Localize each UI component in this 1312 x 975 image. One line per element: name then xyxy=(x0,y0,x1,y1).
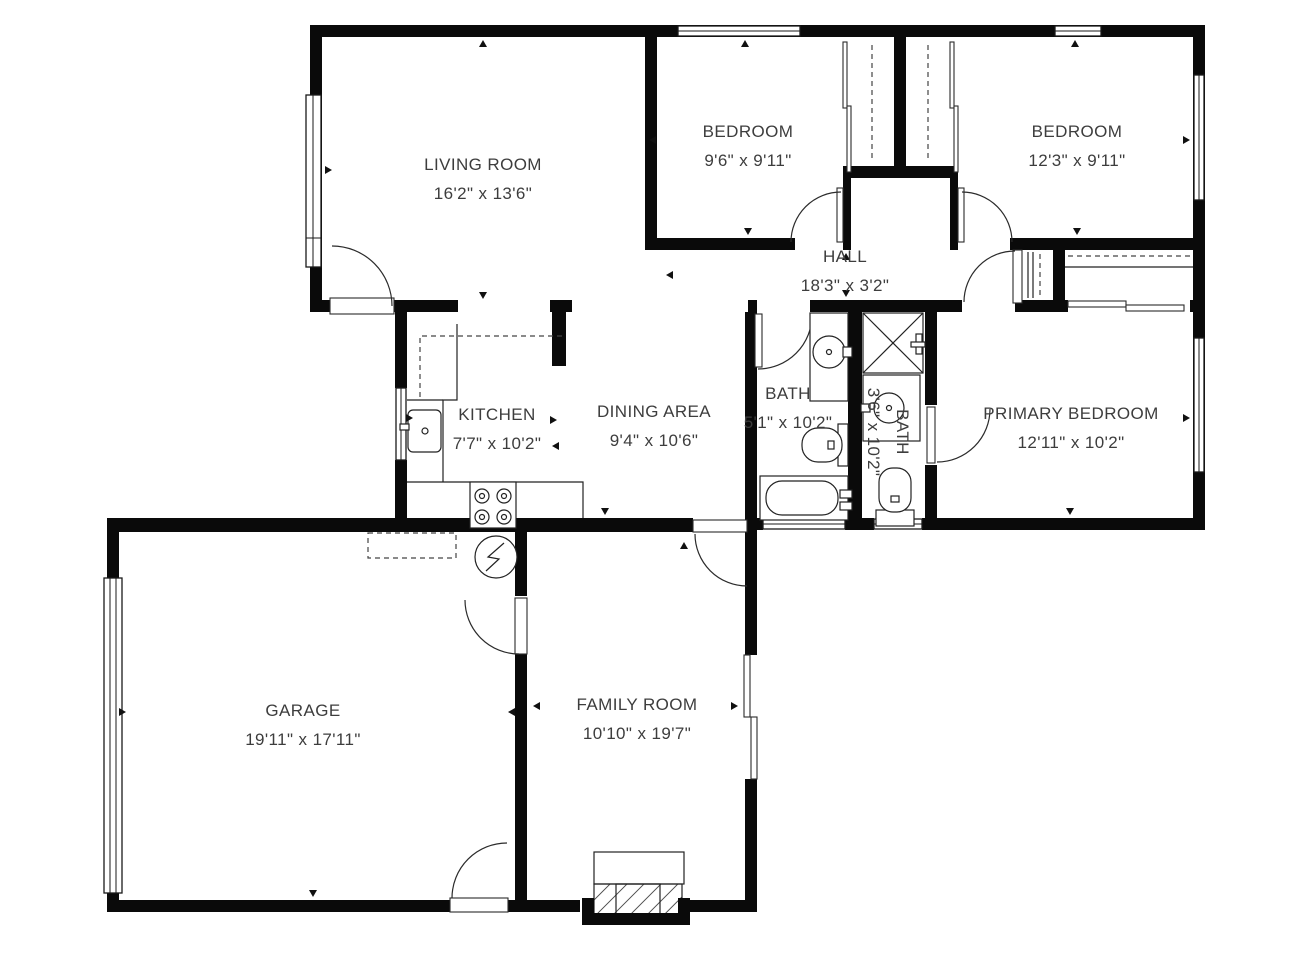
room-dims-kitchen: 7'7" x 10'2" xyxy=(453,434,542,453)
room-dims-bedroom-2: 12'3" x 9'11" xyxy=(1028,151,1125,170)
room-name-kitchen: KITCHEN xyxy=(458,405,535,424)
room-name-garage: GARAGE xyxy=(265,701,340,720)
room-dims-bedroom-1: 9'6" x 9'11" xyxy=(704,151,791,170)
fireplace-icon xyxy=(582,852,690,925)
floor-plan: LIVING ROOM16'2" x 13'6"BEDROOM9'6" x 9'… xyxy=(0,0,1312,975)
room-name-living-room: LIVING ROOM xyxy=(424,155,542,174)
room-name-bedroom-1: BEDROOM xyxy=(703,122,794,141)
room-dims-hall: 18'3" x 3'2" xyxy=(801,276,890,295)
room-name-hall: HALL xyxy=(823,247,867,266)
garage-vehicle-door xyxy=(104,578,122,893)
living-room-window xyxy=(306,95,321,267)
bedroom2-side-window xyxy=(1194,75,1204,200)
room-dims-family-room: 10'10" x 19'7" xyxy=(583,724,691,743)
room-dims-bath-2: 3'6" x 10'2" xyxy=(864,388,883,477)
toilet-icon xyxy=(876,468,914,526)
room-name-bath-1: BATH xyxy=(765,384,811,403)
room-dims-bath-1: 5'1" x 10'2" xyxy=(744,413,833,432)
floor-plan-canvas: LIVING ROOM16'2" x 13'6"BEDROOM9'6" x 9'… xyxy=(0,0,1312,975)
room-name-primary-bedroom: PRIMARY BEDROOM xyxy=(983,404,1158,423)
room-dims-living-room: 16'2" x 13'6" xyxy=(434,184,532,203)
shower-icon xyxy=(863,313,925,373)
cooktop-icon xyxy=(470,482,516,528)
primary-bedroom-window xyxy=(1194,338,1204,472)
room-dims-dining-area: 9'4" x 10'6" xyxy=(610,431,699,450)
room-dims-garage: 19'11" x 17'11" xyxy=(245,730,361,749)
family-room-slider xyxy=(744,655,757,779)
vanity-sink-icon xyxy=(810,313,852,401)
bedroom2-top-window xyxy=(1055,26,1101,36)
room-name-bedroom-2: BEDROOM xyxy=(1032,122,1123,141)
water-heater-icon xyxy=(475,536,517,578)
room-dims-primary-bedroom: 12'11" x 10'2" xyxy=(1017,433,1124,452)
room-name-family-room: FAMILY ROOM xyxy=(577,695,698,714)
primary-closet-slider xyxy=(1068,300,1190,312)
bathtub-icon xyxy=(760,476,852,520)
bedroom1-window xyxy=(678,26,800,36)
room-name-bath-2: BATH xyxy=(893,409,912,455)
room-name-dining-area: DINING AREA xyxy=(597,402,711,421)
